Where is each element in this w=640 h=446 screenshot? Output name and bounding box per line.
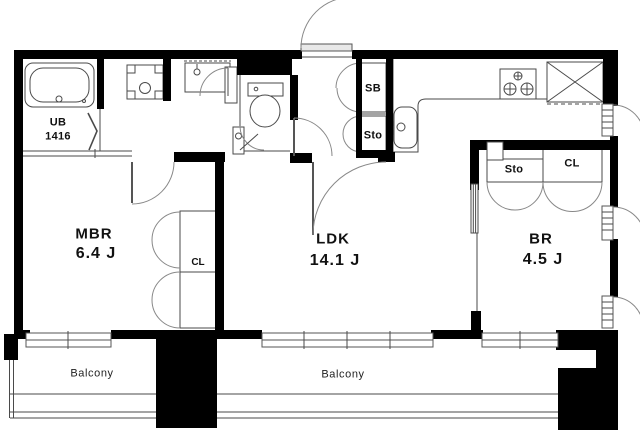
ldk-door bbox=[313, 162, 386, 235]
ldk-size: 14.1 J bbox=[310, 253, 360, 269]
hall-storage-label: Sto bbox=[364, 131, 383, 142]
washroom-door bbox=[294, 118, 332, 156]
casement-window-kitchen bbox=[602, 104, 640, 136]
bathroom-folding-door bbox=[88, 113, 97, 150]
ldk-balcony-window bbox=[262, 331, 433, 349]
kitchen-sink bbox=[390, 107, 417, 148]
casement-window-br-lower bbox=[602, 296, 640, 328]
toilet bbox=[248, 83, 283, 127]
shoe-box-label: SB bbox=[365, 84, 381, 95]
mbr-closet bbox=[152, 211, 216, 328]
bathtub bbox=[25, 63, 94, 107]
floorplan-canvas: MBR 6.4 J LDK 14.1 J BR 4.5 J UB 1416 SB… bbox=[0, 0, 640, 446]
br-closet-label: CL bbox=[564, 159, 579, 170]
mbr-balcony-window bbox=[26, 331, 111, 349]
washing-machine-pan bbox=[127, 65, 163, 99]
balcony-left-label: Balcony bbox=[70, 369, 113, 380]
br-size: 4.5 J bbox=[523, 252, 564, 268]
br-corner-shaft bbox=[487, 142, 503, 160]
mbr-name: MBR bbox=[75, 227, 112, 242]
unit-bath-size-label: 1416 bbox=[45, 132, 71, 143]
br-sliding-door bbox=[471, 184, 478, 233]
br-name: BR bbox=[529, 232, 553, 247]
mbr-closet-label: CL bbox=[191, 258, 204, 268]
balcony-right-label: Balcony bbox=[321, 370, 364, 381]
ldk-name: LDK bbox=[316, 232, 350, 247]
unit-bath-label: UB bbox=[50, 118, 67, 129]
toilet-hand-basin bbox=[233, 127, 244, 154]
refrigerator-space bbox=[547, 62, 603, 104]
entrance-door bbox=[301, 0, 352, 51]
mbr-door bbox=[132, 162, 174, 204]
br-balcony-window bbox=[482, 331, 558, 349]
br-storage-label: Sto bbox=[505, 165, 524, 176]
stove bbox=[500, 69, 536, 99]
mbr-size: 6.4 J bbox=[76, 246, 117, 262]
pipe-space bbox=[225, 67, 237, 103]
casement-window-br-upper bbox=[602, 206, 640, 240]
